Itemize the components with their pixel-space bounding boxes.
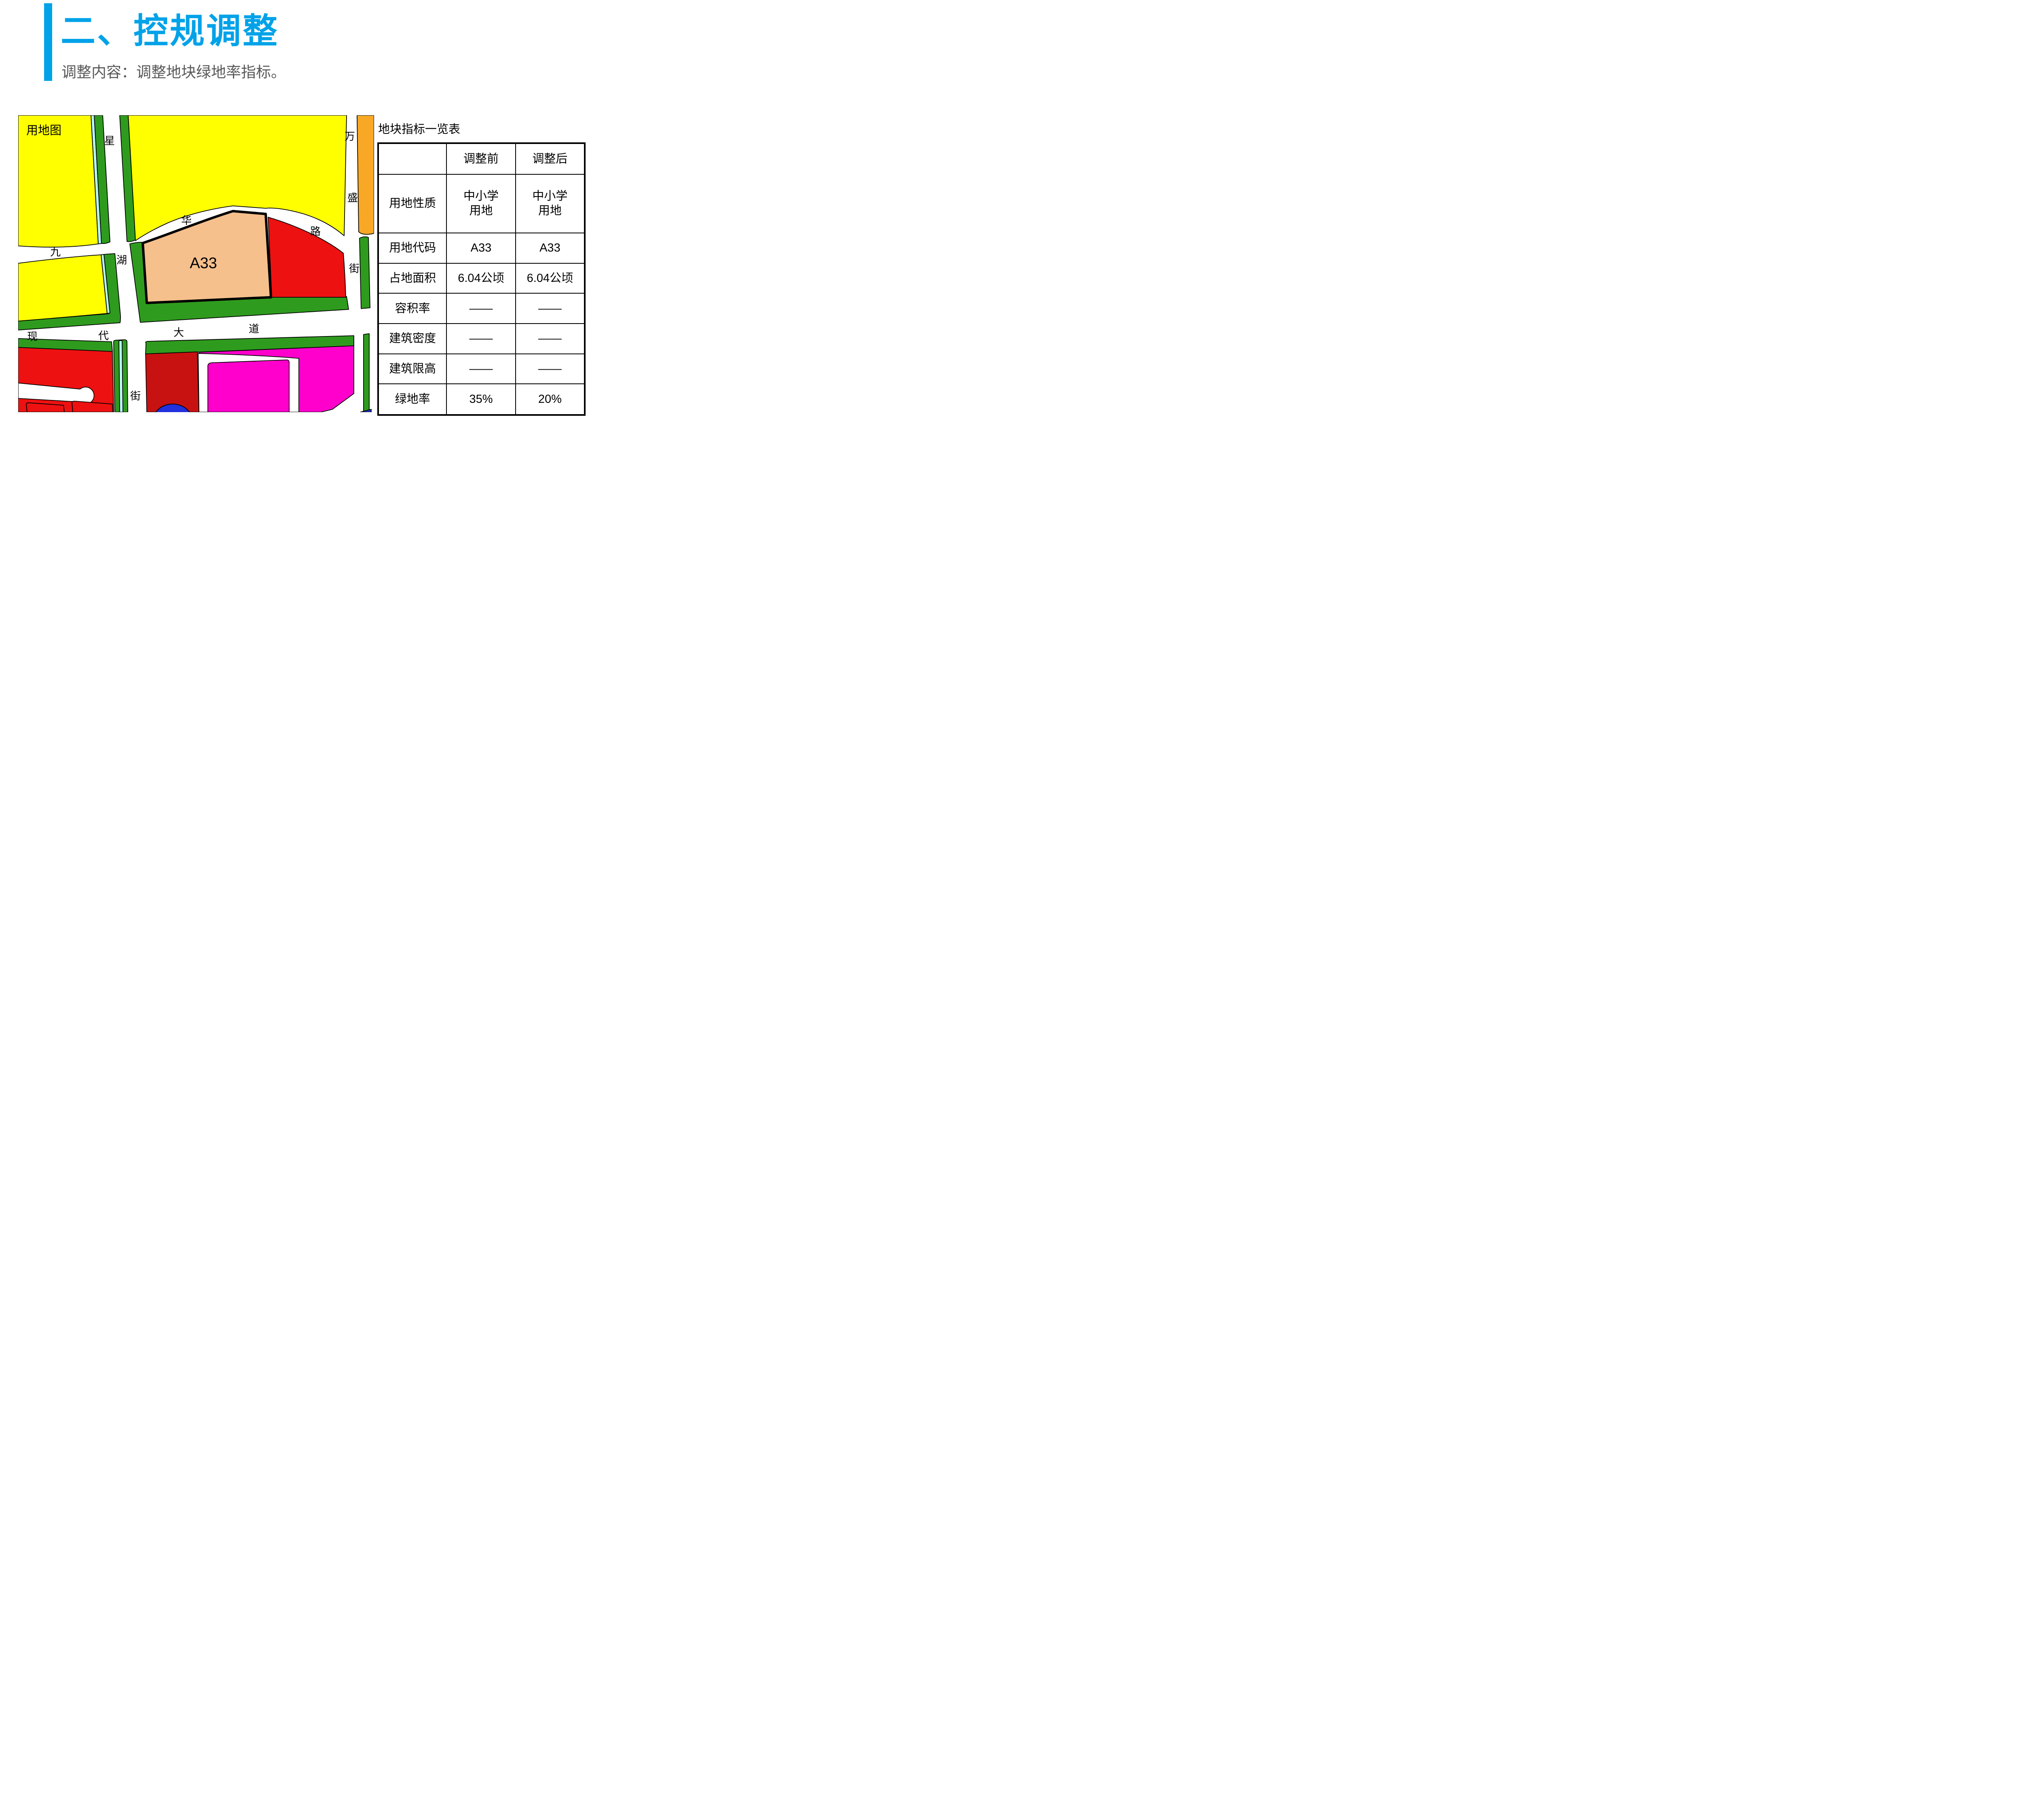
table-row: 绿地率 35% 20% bbox=[378, 384, 585, 415]
table-title: 地块指标一览表 bbox=[378, 120, 586, 137]
table-row: 占地面积 6.04公顷 6.04公顷 bbox=[378, 263, 585, 294]
row-label: 用地代码 bbox=[378, 233, 446, 263]
table-row: 建筑密度 —— —— bbox=[378, 324, 585, 354]
row-after-value-highlight: 20% bbox=[516, 384, 585, 415]
row-after-value: —— bbox=[516, 324, 585, 354]
row-before-value: 35% bbox=[446, 384, 516, 415]
page-subtitle: 调整内容：调整地块绿地率指标。 bbox=[61, 60, 286, 82]
green-belt-wansheng-upper bbox=[360, 237, 370, 309]
row-before-value: —— bbox=[446, 324, 516, 354]
map-corner-label: 用地图 bbox=[26, 124, 61, 137]
road-label-xiandai-4: 道 bbox=[249, 323, 259, 335]
row-label: 用地性质 bbox=[378, 174, 446, 233]
road-label-wansheng-2: 盛 bbox=[347, 192, 358, 204]
road-label-xiandai-2: 代 bbox=[98, 330, 109, 342]
parcel-orange-northeast bbox=[357, 115, 374, 235]
row-before-value: 中小学 用地 bbox=[446, 174, 516, 233]
row-before-value: A33 bbox=[446, 233, 516, 263]
parcel-a33-label: A33 bbox=[190, 255, 217, 272]
header-before-cell: 调整前 bbox=[446, 143, 516, 174]
road-label-xiandai-3: 大 bbox=[173, 326, 184, 339]
row-after-value: 6.04公顷 bbox=[516, 263, 585, 294]
road-label-xinghu-2: 湖 bbox=[116, 254, 127, 266]
row-before-value: —— bbox=[446, 293, 516, 324]
road-label-xinghu-3: 街 bbox=[130, 390, 141, 402]
row-after-value: —— bbox=[516, 354, 585, 384]
header-blank-cell bbox=[378, 143, 446, 174]
canal-stripe-xinghu-lower bbox=[119, 341, 123, 412]
table-row: 用地代码 A33 A33 bbox=[378, 233, 585, 263]
row-label: 容积率 bbox=[378, 293, 446, 324]
slide: 二、控规调整 调整内容：调整地块绿地率指标。 bbox=[0, 0, 607, 455]
row-label: 绿地率 bbox=[378, 384, 446, 415]
row-after-value: 中小学 用地 bbox=[516, 174, 585, 233]
row-before-value: 6.04公顷 bbox=[446, 263, 516, 294]
row-label: 建筑限高 bbox=[378, 354, 446, 384]
table-header-row: 调整前 调整后 bbox=[378, 143, 585, 174]
road-label-jiuhua-3: 路 bbox=[310, 225, 321, 237]
road-label-xiandai-1: 现 bbox=[27, 330, 38, 343]
land-use-map: 用地图 A33 星 湖 街 九 华 路 万 盛 街 现 代 大 道 bbox=[18, 115, 374, 412]
row-after-value: —— bbox=[516, 293, 585, 324]
road-label-jiuhua-1: 九 bbox=[50, 246, 61, 258]
page-title: 二、控规调整 bbox=[61, 12, 279, 51]
table-row: 建筑限高 —— —— bbox=[378, 354, 585, 384]
indicator-panel: 地块指标一览表 调整前 调整后 用地性质 中小学 用地 中小学 用地 用地代码 bbox=[377, 120, 586, 416]
parcel-yellow-west bbox=[18, 255, 107, 321]
row-label: 占地面积 bbox=[378, 263, 446, 294]
road-label-wansheng-3: 街 bbox=[349, 262, 360, 275]
indicator-table: 调整前 调整后 用地性质 中小学 用地 中小学 用地 用地代码 A33 A33 … bbox=[377, 142, 586, 416]
parcel-red-southwest bbox=[18, 347, 114, 412]
row-label: 建筑密度 bbox=[378, 324, 446, 354]
green-belt-wansheng-lower bbox=[364, 334, 369, 412]
road-label-wansheng-1: 万 bbox=[345, 130, 355, 142]
row-after-value: A33 bbox=[516, 233, 585, 263]
table-row: 容积率 —— —— bbox=[378, 293, 585, 324]
road-label-xinghu-1: 星 bbox=[104, 135, 115, 147]
road-label-jiuhua-2: 华 bbox=[181, 214, 192, 226]
table-row: 用地性质 中小学 用地 中小学 用地 bbox=[378, 174, 585, 233]
row-before-value: —— bbox=[446, 354, 516, 384]
accent-bar bbox=[44, 3, 52, 81]
parcel-red-south-centre bbox=[146, 352, 199, 412]
header-after-cell: 调整后 bbox=[516, 143, 585, 174]
